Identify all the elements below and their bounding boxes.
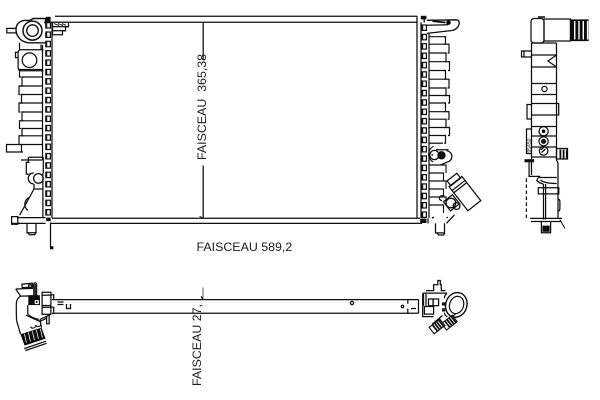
- svg-text:FAISCEAU 589,2: FAISCEAU 589,2: [197, 240, 293, 254]
- svg-text:FAISCEAU 365,38: FAISCEAU 365,38: [195, 54, 209, 160]
- svg-text:FAISCEAU 27,: FAISCEAU 27,: [190, 304, 204, 386]
- svg-text:95450: 95450: [527, 138, 533, 152]
